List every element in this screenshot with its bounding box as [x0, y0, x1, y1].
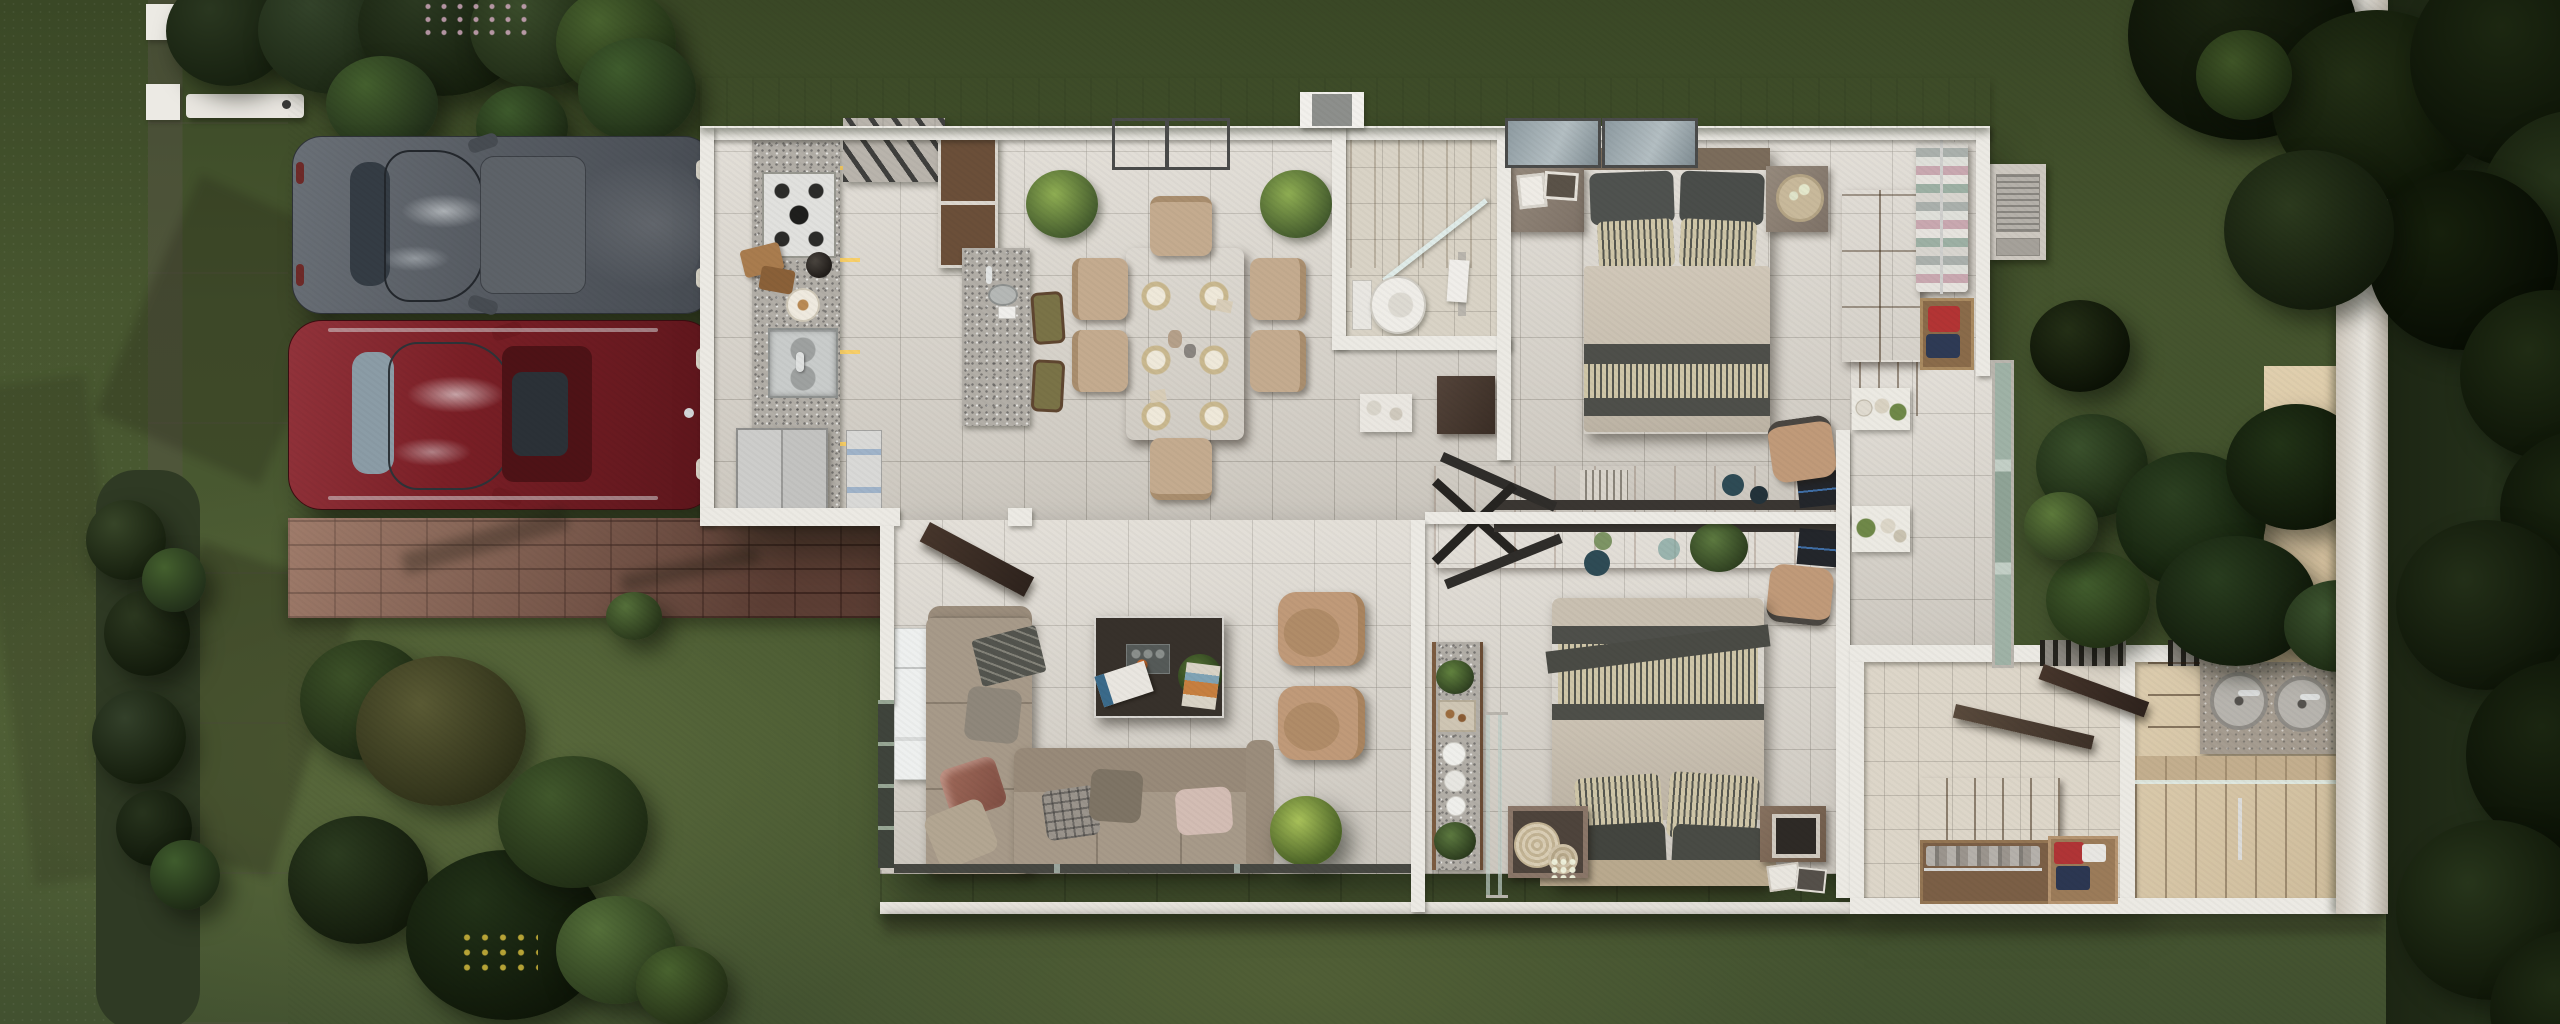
- fridge: [736, 428, 828, 512]
- courtyard-plant-light: [2024, 492, 2098, 560]
- shoe-row: [1926, 874, 2040, 894]
- window-living-west: [878, 700, 894, 868]
- plate-of-food: [786, 288, 820, 322]
- courtyard-plant: [2046, 552, 2150, 648]
- terrace-lip: [880, 902, 1850, 914]
- sofa-armrest: [1246, 740, 1274, 870]
- island-faucet: [986, 266, 992, 284]
- ac-condenser: [1996, 174, 2040, 232]
- wall-kitchen-west: [700, 126, 714, 526]
- dining-plant: [1026, 170, 1098, 238]
- garden-shrub-light: [636, 946, 728, 1024]
- toilet-tank: [1352, 280, 1372, 330]
- armchair: [1278, 592, 1365, 666]
- linen-cabinet: [1437, 376, 1495, 434]
- dining-chair: [1150, 438, 1212, 500]
- white-clothes: [2082, 844, 2106, 862]
- kettle: [806, 252, 832, 278]
- dining-chair: [1072, 330, 1128, 392]
- console-plant: [1436, 660, 1474, 694]
- car-windshield: [384, 150, 484, 302]
- pillow-taupe: [1088, 768, 1144, 824]
- house-south-shadow: [884, 914, 2384, 934]
- car-taillight: [296, 162, 304, 184]
- dining-chair: [1250, 330, 1306, 392]
- round-basin: [2274, 676, 2330, 732]
- dining-chair: [1250, 258, 1306, 320]
- desk-plant: [1690, 522, 1748, 572]
- car-windshield: [388, 342, 512, 490]
- pillow-striped: [1679, 218, 1757, 270]
- tree-canopy: [2224, 150, 2394, 310]
- agave-plant: [92, 690, 186, 784]
- floor-plan-render: [0, 0, 2560, 1024]
- entry-step-inner: [1312, 94, 1352, 126]
- toilet-bowl: [1370, 276, 1426, 334]
- kitchen-island: [962, 248, 1030, 426]
- wall-kitchen-south: [700, 508, 900, 526]
- white-vase: [1442, 742, 1466, 766]
- basin-faucet: [2238, 690, 2260, 696]
- hall-shelf: [1852, 506, 1910, 552]
- gray-sedan: [292, 136, 712, 312]
- blue-vase: [1750, 486, 1768, 504]
- navy-bag: [1926, 334, 1960, 358]
- monstera-plant: [142, 548, 206, 612]
- sink-faucet: [796, 352, 804, 372]
- dining-chair: [1072, 258, 1128, 320]
- island-sink: [988, 284, 1018, 306]
- magazine: [1181, 662, 1220, 710]
- pillow-dark: [1679, 171, 1765, 226]
- white-flowers: [1550, 858, 1578, 878]
- shoe-row: [1926, 846, 2040, 866]
- wall-living-east: [1411, 520, 1425, 912]
- blue-vase: [1722, 474, 1744, 496]
- photo-on-floor: [1795, 866, 1827, 893]
- centerpiece-vase: [1168, 330, 1182, 348]
- ac-unit-small: [1996, 238, 2040, 256]
- window-dining: [1112, 118, 1230, 170]
- coffee-niche-shelf: [1360, 394, 1412, 432]
- bar-stool: [1030, 291, 1066, 345]
- tree-canopy-light: [2196, 30, 2292, 120]
- bed1: [1584, 148, 1770, 434]
- desk-chair: [1765, 563, 1835, 627]
- pillow-striped: [1597, 218, 1675, 270]
- red-clothes: [2054, 842, 2084, 864]
- console-tray: [1438, 700, 1476, 732]
- car-chrome-strip: [328, 496, 658, 500]
- blanket-stripe: [1584, 364, 1770, 398]
- car-taillight: [296, 264, 304, 286]
- island-decor: [998, 306, 1016, 319]
- gate-lamp-dot: [282, 100, 291, 109]
- rail-bar: [1940, 140, 1943, 294]
- glass-shelves: [1486, 712, 1508, 898]
- wall-desks: [1425, 512, 1850, 524]
- hall-shelf: [1852, 388, 1910, 430]
- living-plant: [1270, 796, 1342, 866]
- washer-dryer: [846, 430, 882, 510]
- bar-stool: [1031, 359, 1066, 413]
- pillow-dark: [1589, 171, 1675, 226]
- wall-living-west: [880, 526, 894, 704]
- red-sedan: [288, 320, 714, 508]
- dining-chair: [1150, 196, 1212, 256]
- white-vase: [1446, 796, 1466, 816]
- wall-bed2-east: [1836, 430, 1850, 898]
- driveway-end-bush: [606, 592, 662, 640]
- wall-bath1-west: [1332, 126, 1346, 348]
- wall-entry-jamb: [1008, 508, 1032, 526]
- window-bedroom1: [1505, 118, 1601, 168]
- dining-table: [1126, 248, 1244, 440]
- white-vase: [1444, 770, 1466, 792]
- glass-vase: [1658, 538, 1680, 560]
- hall-glass-wall: [1992, 360, 2014, 668]
- dining-plant: [1260, 170, 1332, 238]
- towel: [1447, 259, 1470, 302]
- armchair: [1278, 686, 1365, 760]
- basin-faucet: [2300, 694, 2320, 700]
- flower-tray: [1776, 174, 1824, 222]
- green-cup: [1594, 532, 1612, 550]
- car-logo: [684, 408, 694, 418]
- blue-vase: [1584, 550, 1610, 576]
- sliding-door-frame: [894, 864, 1411, 873]
- red-bag: [1928, 306, 1960, 332]
- desk-chair: [1766, 414, 1838, 484]
- window-bedroom1: [1602, 118, 1698, 168]
- shoe-rail: [1924, 868, 2042, 871]
- wardrobe: [1842, 190, 1920, 362]
- centerpiece-vase: [1184, 344, 1196, 358]
- gate-post: [146, 84, 180, 120]
- pillow-gray: [963, 685, 1022, 744]
- wall-wing-west: [1850, 662, 1864, 898]
- wall-east-main: [1976, 126, 1990, 376]
- books-stack: [1580, 470, 1628, 500]
- picture-frame: [1543, 171, 1579, 201]
- garden-tree-brown: [356, 656, 526, 806]
- desk-runner: [1494, 524, 1840, 532]
- closet-cabinet-row: [1920, 778, 2060, 840]
- car-chrome-strip: [328, 328, 658, 332]
- vanity-cabinet: [2148, 662, 2200, 758]
- shower-handle: [2238, 798, 2242, 860]
- wall-bed1-west: [1497, 126, 1511, 460]
- console-plant: [1434, 822, 1476, 860]
- pillow-pink: [1174, 786, 1233, 836]
- monstera-plant: [150, 840, 220, 910]
- car-sunroof: [512, 372, 568, 456]
- round-basin: [2210, 672, 2268, 730]
- courtyard-plant-dark: [2030, 300, 2130, 392]
- car-roof: [480, 156, 586, 294]
- monstera-cluster: [578, 38, 696, 142]
- photo-frame: [1772, 814, 1820, 858]
- garden-shrub: [498, 756, 648, 888]
- wall-bath1-south: [1332, 336, 1511, 350]
- navy-clothes: [2056, 866, 2090, 890]
